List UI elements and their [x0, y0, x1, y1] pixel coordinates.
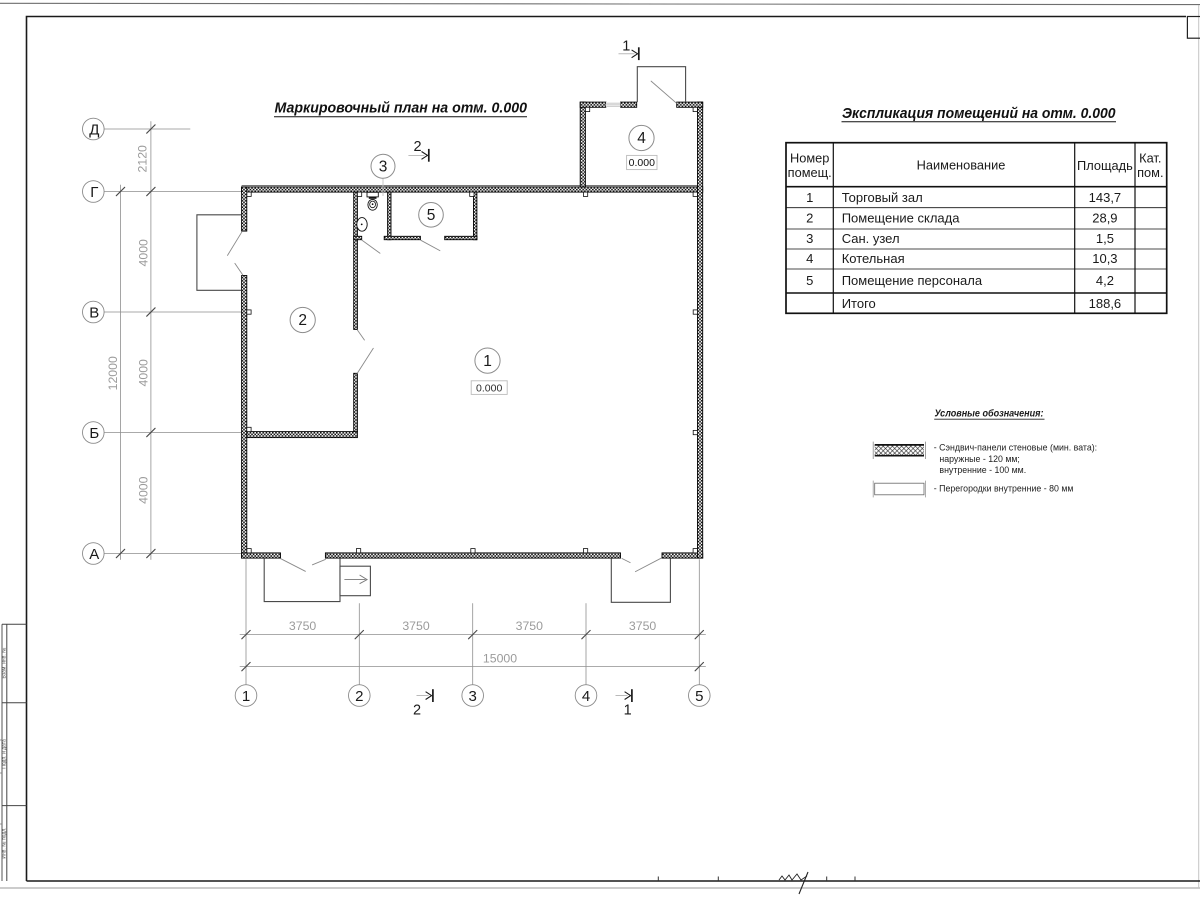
- svg-text:Д: Д: [89, 121, 99, 138]
- svg-text:Экспликация помещений на отм.: Экспликация помещений на отм. 0.000: [842, 105, 1116, 122]
- svg-text:Котельная: Котельная: [842, 251, 905, 266]
- svg-text:пом.: пом.: [1137, 165, 1163, 180]
- svg-text:1: 1: [624, 702, 632, 718]
- svg-text:5: 5: [806, 273, 813, 288]
- svg-text:Г: Г: [90, 184, 98, 201]
- svg-text:4,2: 4,2: [1096, 273, 1114, 288]
- svg-text:В: В: [89, 304, 99, 321]
- svg-text:1: 1: [483, 353, 492, 370]
- svg-text:3750: 3750: [516, 619, 544, 633]
- svg-text:Подп. и дата: Подп. и дата: [2, 739, 8, 769]
- svg-text:Торговый зал: Торговый зал: [842, 190, 923, 205]
- svg-text:2: 2: [298, 312, 307, 329]
- svg-text:А: А: [89, 546, 99, 563]
- svg-text:Инв. № подл.: Инв. № подл.: [2, 827, 8, 858]
- svg-text:5: 5: [695, 688, 703, 705]
- svg-text:4: 4: [637, 130, 646, 147]
- svg-text:4000: 4000: [136, 476, 150, 504]
- svg-text:15000: 15000: [483, 651, 517, 665]
- svg-text:0.000: 0.000: [476, 383, 502, 395]
- svg-text:Итого: Итого: [842, 296, 876, 311]
- svg-text:3: 3: [806, 231, 813, 246]
- svg-text:143,7: 143,7: [1089, 190, 1122, 205]
- svg-text:2120: 2120: [135, 145, 149, 173]
- svg-text:3: 3: [379, 159, 388, 176]
- svg-text:наружные - 120 мм;: наружные - 120 мм;: [939, 454, 1019, 464]
- svg-text:3: 3: [469, 688, 477, 705]
- svg-text:Кат.: Кат.: [1139, 150, 1161, 165]
- svg-text:4000: 4000: [136, 359, 150, 387]
- svg-text:- Сэндвич-панели стеновые (мин: - Сэндвич-панели стеновые (мин. вата):: [934, 442, 1097, 452]
- svg-text:2: 2: [806, 211, 813, 226]
- svg-text:Наименование: Наименование: [917, 157, 1006, 172]
- svg-text:4000: 4000: [136, 239, 150, 267]
- svg-text:12000: 12000: [106, 356, 120, 390]
- svg-text:3750: 3750: [289, 619, 317, 633]
- svg-text:помещ.: помещ.: [788, 165, 832, 180]
- svg-text:2: 2: [413, 139, 421, 155]
- svg-text:1,5: 1,5: [1096, 231, 1114, 246]
- svg-text:3750: 3750: [402, 619, 430, 633]
- svg-text:Взам. инв. №: Взам. инв. №: [2, 648, 8, 679]
- svg-text:- Перегородки внутренние - 80: - Перегородки внутренние - 80 мм: [934, 484, 1074, 494]
- svg-text:Площадь: Площадь: [1077, 158, 1133, 173]
- svg-text:внутренние - 100 мм.: внутренние - 100 мм.: [939, 465, 1026, 475]
- svg-text:Условные обозначения:: Условные обозначения:: [935, 408, 1044, 420]
- svg-text:Сан. узел: Сан. узел: [842, 231, 900, 246]
- svg-text:1: 1: [622, 39, 630, 55]
- svg-text:188,6: 188,6: [1089, 296, 1122, 311]
- svg-text:4: 4: [806, 251, 813, 266]
- svg-text:0.000: 0.000: [629, 157, 655, 169]
- svg-text:1: 1: [242, 688, 250, 705]
- svg-text:Маркировочный план на отм. 0.0: Маркировочный план на отм. 0.000: [275, 99, 528, 116]
- svg-text:4: 4: [582, 688, 590, 705]
- svg-text:Помещение склада: Помещение склада: [842, 211, 961, 226]
- svg-text:Б: Б: [89, 425, 99, 442]
- svg-text:5: 5: [427, 207, 436, 224]
- svg-text:Помещение персонала: Помещение персонала: [842, 273, 983, 288]
- svg-text:3750: 3750: [629, 619, 657, 633]
- svg-text:10,3: 10,3: [1092, 251, 1117, 266]
- svg-text:2: 2: [413, 702, 421, 718]
- svg-text:28,9: 28,9: [1092, 211, 1117, 226]
- svg-text:1: 1: [806, 190, 813, 205]
- svg-text:2: 2: [355, 688, 363, 705]
- svg-text:Номер: Номер: [790, 150, 829, 165]
